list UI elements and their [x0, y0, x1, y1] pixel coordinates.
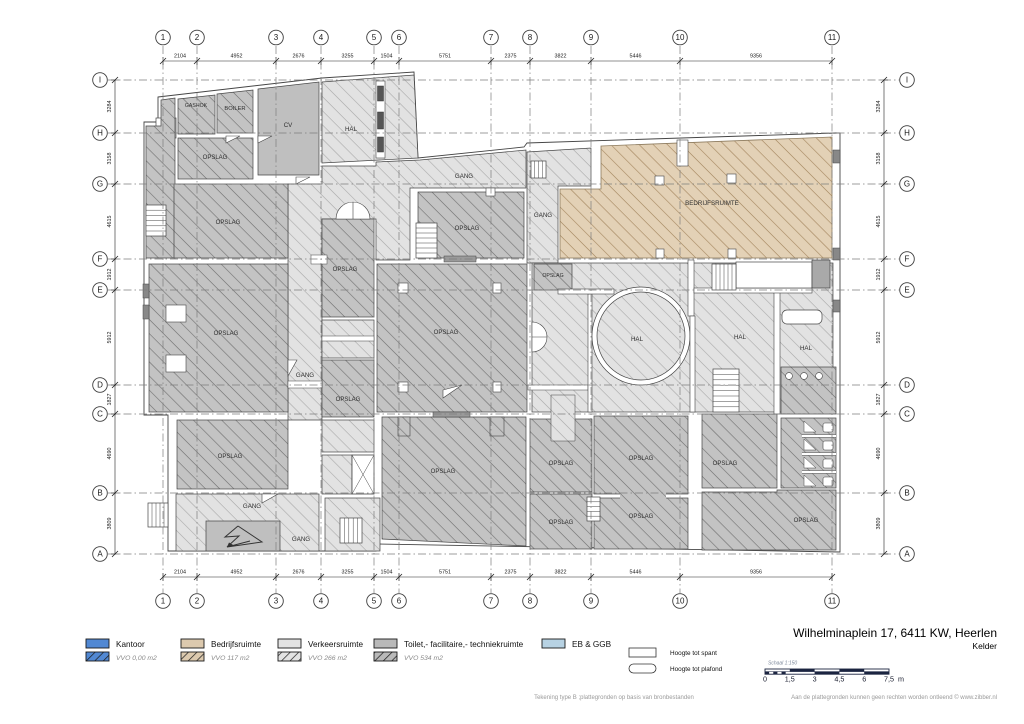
svg-text:5: 5: [372, 597, 377, 606]
svg-text:HAL: HAL: [345, 126, 358, 133]
svg-text:OPSLAG: OPSLAG: [333, 267, 358, 273]
svg-text:OPSLAG: OPSLAG: [431, 469, 456, 475]
svg-text:HAL: HAL: [734, 334, 747, 341]
svg-text:10: 10: [676, 33, 685, 42]
svg-text:1912: 1912: [107, 269, 113, 281]
svg-text:3809: 3809: [107, 518, 113, 530]
svg-text:Hoogte tot plafond: Hoogte tot plafond: [670, 666, 723, 673]
svg-text:D: D: [904, 381, 910, 390]
svg-text:5912: 5912: [107, 332, 113, 344]
svg-text:1504: 1504: [381, 570, 393, 576]
svg-text:B: B: [904, 489, 909, 498]
svg-text:Verkeersruimte: Verkeersruimte: [308, 640, 364, 649]
svg-text:3284: 3284: [876, 101, 882, 113]
svg-text:OPSLAG: OPSLAG: [794, 518, 819, 524]
svg-text:7: 7: [489, 597, 494, 606]
svg-text:HAL: HAL: [631, 336, 644, 343]
svg-text:OPSLAG: OPSLAG: [549, 520, 574, 526]
svg-text:GANG: GANG: [292, 536, 310, 543]
svg-text:1: 1: [161, 597, 166, 606]
svg-text:Bedrijfsruimte: Bedrijfsruimte: [211, 640, 261, 649]
svg-text:OPSLAG: OPSLAG: [455, 226, 480, 232]
svg-text:OPSLAG: OPSLAG: [216, 220, 241, 226]
svg-text:D: D: [97, 381, 103, 390]
svg-text:4: 4: [319, 597, 324, 606]
svg-text:OPSLAG: OPSLAG: [218, 454, 243, 460]
svg-text:2676: 2676: [293, 54, 305, 60]
svg-text:2: 2: [195, 33, 200, 42]
svg-text:F: F: [98, 255, 103, 264]
svg-text:1827: 1827: [107, 394, 113, 406]
svg-text:1504: 1504: [381, 54, 393, 60]
svg-text:E: E: [97, 286, 102, 295]
svg-text:4952: 4952: [231, 570, 243, 576]
svg-text:2375: 2375: [505, 570, 517, 576]
svg-text:5751: 5751: [439, 570, 451, 576]
svg-text:VVO 117 m2: VVO 117 m2: [211, 655, 250, 662]
svg-text:6: 6: [862, 675, 866, 684]
svg-text:9356: 9356: [750, 570, 762, 576]
svg-text:F: F: [905, 255, 910, 264]
svg-text:VVO 0,00 m2: VVO 0,00 m2: [116, 655, 157, 662]
svg-text:H: H: [97, 129, 103, 138]
svg-text:1912: 1912: [876, 269, 882, 281]
svg-text:OPSLAG: OPSLAG: [336, 397, 361, 403]
svg-text:OPSLAG: OPSLAG: [629, 514, 654, 520]
svg-text:3284: 3284: [107, 101, 113, 113]
svg-text:B: B: [97, 489, 102, 498]
svg-text:5446: 5446: [630, 570, 642, 576]
svg-text:Schaal 1:150: Schaal 1:150: [768, 661, 797, 667]
svg-text:4615: 4615: [876, 216, 882, 228]
svg-text:3: 3: [813, 675, 817, 684]
svg-text:3255: 3255: [342, 570, 354, 576]
svg-text:OPSLAG: OPSLAG: [203, 155, 228, 161]
svg-text:2104: 2104: [174, 54, 186, 60]
svg-text:GANG: GANG: [296, 372, 314, 379]
svg-text:3822: 3822: [555, 570, 567, 576]
svg-text:5: 5: [372, 33, 377, 42]
svg-text:3255: 3255: [342, 54, 354, 60]
svg-text:VVO 266 m2: VVO 266 m2: [308, 655, 347, 662]
svg-text:7,5: 7,5: [884, 675, 894, 684]
svg-text:BEDRIJFSRUIMTE: BEDRIJFSRUIMTE: [685, 200, 739, 207]
svg-text:I: I: [906, 76, 908, 85]
svg-text:OPSLAG: OPSLAG: [549, 461, 574, 467]
svg-text:2676: 2676: [293, 570, 305, 576]
svg-text:3822: 3822: [555, 54, 567, 60]
svg-text:GANG: GANG: [534, 212, 552, 219]
svg-text:GASHOK: GASHOK: [185, 103, 208, 109]
svg-text:OPSLAG: OPSLAG: [434, 330, 459, 336]
svg-text:OPSLAG: OPSLAG: [214, 331, 239, 337]
svg-text:A: A: [904, 550, 910, 559]
svg-text:H: H: [904, 129, 910, 138]
svg-text:4,5: 4,5: [834, 675, 844, 684]
svg-text:4690: 4690: [107, 448, 113, 460]
svg-text:m: m: [898, 675, 904, 684]
svg-text:2375: 2375: [505, 54, 517, 60]
svg-text:1: 1: [161, 33, 166, 42]
svg-text:9: 9: [589, 597, 594, 606]
svg-text:1,5: 1,5: [785, 675, 795, 684]
svg-text:EB & GGB: EB & GGB: [572, 640, 612, 649]
svg-text:4615: 4615: [107, 216, 113, 228]
svg-text:OPSLAG: OPSLAG: [713, 461, 738, 467]
svg-text:4952: 4952: [231, 54, 243, 60]
svg-text:G: G: [904, 180, 910, 189]
svg-text:6: 6: [397, 33, 402, 42]
svg-text:HAL: HAL: [800, 345, 813, 352]
svg-text:11: 11: [828, 33, 837, 42]
svg-text:I: I: [99, 76, 101, 85]
svg-text:9356: 9356: [750, 54, 762, 60]
svg-text:3809: 3809: [876, 518, 882, 530]
svg-text:E: E: [904, 286, 909, 295]
svg-text:2104: 2104: [174, 570, 186, 576]
svg-text:Aan de plattegronden kunnen ge: Aan de plattegronden kunnen geen rechten…: [791, 694, 997, 701]
svg-text:1827: 1827: [876, 394, 882, 406]
svg-text:GANG: GANG: [243, 503, 261, 510]
svg-text:Hoogte tot spant: Hoogte tot spant: [670, 650, 717, 657]
svg-text:5751: 5751: [439, 54, 451, 60]
svg-text:Kantoor: Kantoor: [116, 640, 145, 649]
svg-text:C: C: [97, 410, 103, 419]
svg-text:6: 6: [397, 597, 402, 606]
svg-text:4690: 4690: [876, 448, 882, 460]
svg-text:Kelder: Kelder: [972, 641, 997, 651]
svg-text:A: A: [97, 550, 103, 559]
svg-text:3: 3: [274, 33, 279, 42]
svg-text:OPSLAG: OPSLAG: [629, 456, 654, 462]
svg-text:5446: 5446: [630, 54, 642, 60]
svg-text:5912: 5912: [876, 332, 882, 344]
svg-text:8: 8: [528, 33, 533, 42]
svg-text:11: 11: [828, 597, 837, 606]
svg-text:2: 2: [195, 597, 200, 606]
svg-text:0: 0: [763, 675, 767, 684]
svg-text:CV: CV: [284, 122, 293, 129]
svg-text:3: 3: [274, 597, 279, 606]
svg-text:OPSLAG: OPSLAG: [542, 273, 563, 279]
svg-text:4: 4: [319, 33, 324, 42]
svg-text:Tekening type B ;plattegronden: Tekening type B ;plattegronden op basis …: [534, 695, 694, 701]
svg-text:Toilet,- facilitaire,- technie: Toilet,- facilitaire,- techniekruimte: [404, 640, 524, 649]
svg-text:3158: 3158: [876, 153, 882, 165]
svg-text:7: 7: [489, 33, 494, 42]
svg-text:VVO 534 m2: VVO 534 m2: [404, 655, 443, 662]
svg-text:10: 10: [676, 597, 685, 606]
svg-text:8: 8: [528, 597, 533, 606]
svg-text:Wilhelminaplein 17, 6411 KW, H: Wilhelminaplein 17, 6411 KW, Heerlen: [793, 626, 997, 640]
svg-text:BOILER: BOILER: [224, 106, 245, 112]
svg-text:G: G: [97, 180, 103, 189]
svg-text:GANG: GANG: [455, 173, 473, 180]
svg-text:C: C: [904, 410, 910, 419]
svg-text:3158: 3158: [107, 153, 113, 165]
svg-text:9: 9: [589, 33, 594, 42]
